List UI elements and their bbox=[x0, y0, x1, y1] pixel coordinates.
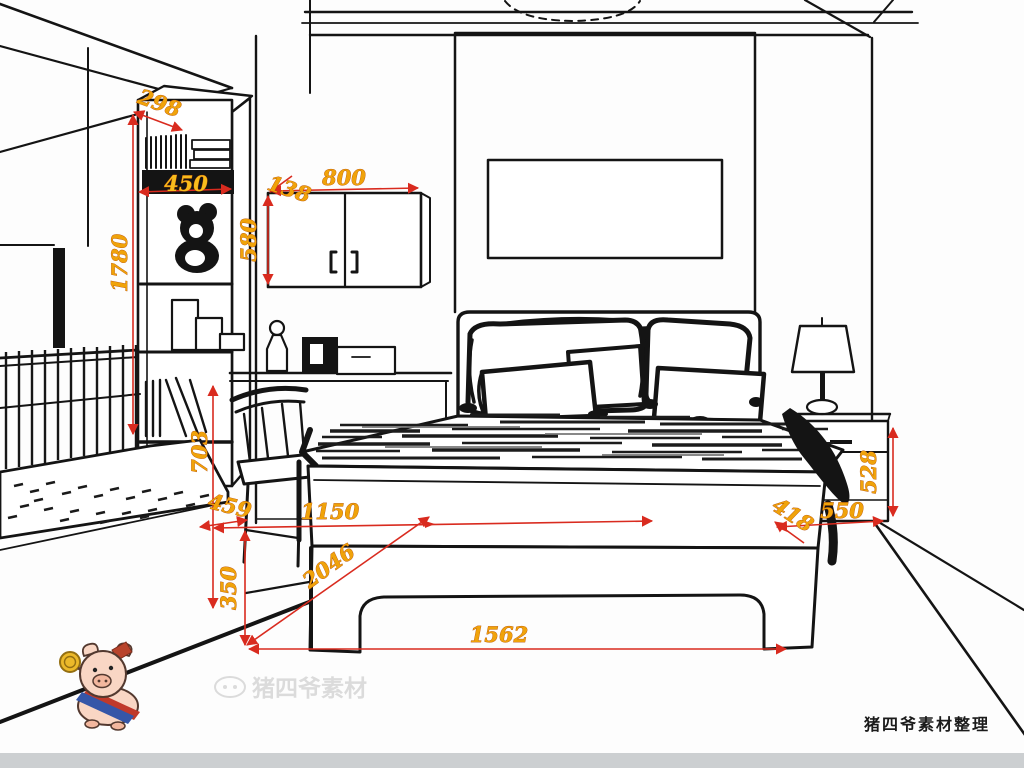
dim-label-528: 528 bbox=[856, 450, 881, 494]
pig-snout-logo bbox=[215, 677, 245, 697]
dim-label-450: 450 bbox=[164, 171, 208, 196]
dark-box-slot bbox=[310, 344, 323, 364]
gold-coin bbox=[60, 652, 80, 672]
credit-text: 猪四爷素材整理 bbox=[863, 715, 990, 734]
dim-label-703: 703 bbox=[187, 430, 212, 474]
decanter bbox=[267, 321, 287, 371]
lamp-stem bbox=[820, 372, 825, 402]
bedroom-dimension-drawing: 298 450 1780 138 800 580 703 459 1150 20… bbox=[0, 0, 1024, 768]
lamp-base bbox=[807, 400, 837, 414]
watermark-text: 猪四爷素材 bbox=[252, 675, 367, 702]
back-wall-panel bbox=[455, 33, 755, 312]
drawing-canvas: 298 450 1780 138 800 580 703 459 1150 20… bbox=[0, 0, 1024, 768]
white-box bbox=[337, 347, 395, 374]
table-lamp bbox=[792, 318, 854, 414]
pig-mascot bbox=[60, 642, 140, 730]
wall-cabinet bbox=[268, 193, 430, 287]
dim-label-1562: 1562 bbox=[470, 622, 528, 647]
bookshelf bbox=[138, 86, 252, 486]
dim-label-550: 550 bbox=[820, 498, 864, 523]
bed-legs-valance bbox=[310, 546, 818, 652]
dim-label-1780: 1780 bbox=[107, 233, 132, 292]
watermark: 猪四爷素材 bbox=[215, 675, 367, 702]
dim-label-580: 580 bbox=[236, 218, 261, 262]
lamp-shade bbox=[792, 326, 854, 372]
dim-label-1150: 1150 bbox=[301, 499, 360, 524]
bookshelf-side bbox=[232, 98, 250, 486]
pillow-front-right bbox=[654, 368, 764, 422]
wall-art-frame bbox=[488, 160, 722, 258]
dim-label-800: 800 bbox=[321, 165, 366, 190]
window-frame-bar bbox=[53, 248, 65, 348]
pig-snout bbox=[93, 675, 111, 688]
dim-label-350: 350 bbox=[216, 566, 241, 610]
footboard bbox=[308, 466, 826, 548]
pillow-front-left bbox=[482, 362, 596, 420]
desk-items bbox=[267, 321, 395, 374]
bottom-bar bbox=[0, 753, 1024, 768]
